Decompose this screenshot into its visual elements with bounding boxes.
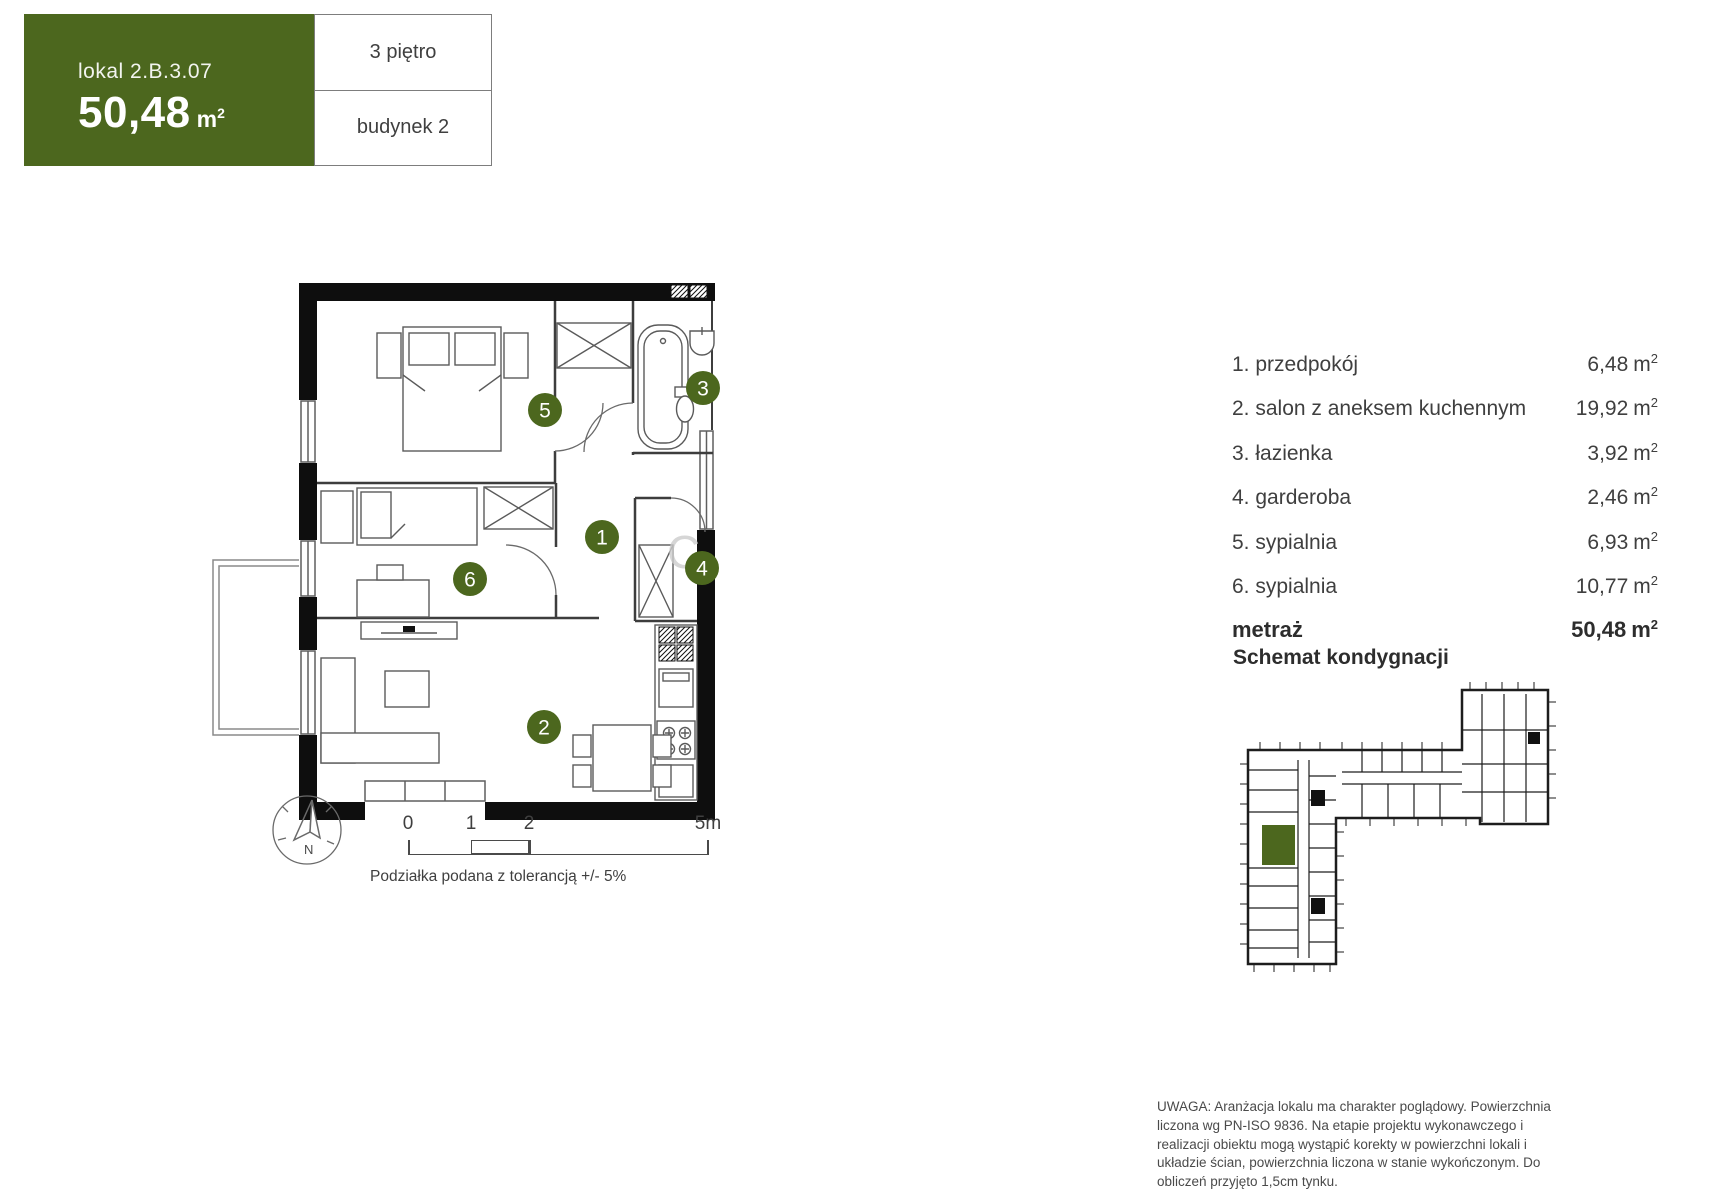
- room-circle-6: 6: [453, 562, 487, 596]
- north-arrow-icon: [294, 800, 312, 840]
- room-row: 3. łazienka3,92m2: [1232, 437, 1658, 464]
- room-area: 10,77m2: [1576, 570, 1658, 597]
- floor-plan: C 5 3 1 6 4 2: [205, 283, 721, 820]
- wardrobe-icon: [557, 323, 631, 368]
- elevator-shaft: [1311, 790, 1325, 806]
- schematic-unit-highlight: [1262, 825, 1295, 865]
- room-row: 6. sypialnia10,77m2: [1232, 570, 1658, 597]
- scale-bar-tick: [408, 840, 410, 855]
- floor-cell: 3 piętro: [315, 15, 491, 90]
- scale-caption: Podziałka podana z tolerancją +/- 5%: [370, 868, 626, 886]
- svg-text:3: 3: [697, 378, 709, 401]
- room-row: 1. przedpokój6,48m2: [1232, 348, 1658, 375]
- room-circle-5: 5: [528, 393, 562, 427]
- svg-text:2: 2: [538, 717, 550, 740]
- room-area: 3,92m2: [1587, 437, 1658, 464]
- scale-bar-box: [471, 840, 529, 854]
- total-label: metraż: [1232, 619, 1303, 640]
- room-circle-3: 3: [686, 371, 720, 405]
- nightstand-icon: [504, 333, 528, 378]
- room-circle-4: 4: [685, 551, 719, 585]
- nightstand-icon: [321, 491, 353, 543]
- chair-icon: [573, 735, 591, 757]
- svg-text:6: 6: [464, 569, 476, 592]
- unit-area: 50,48m2: [78, 88, 314, 138]
- schematic-drawing: [1130, 672, 1560, 982]
- nightstand-icon: [377, 333, 401, 378]
- living-furniture: [321, 658, 671, 791]
- scale-bar-tick: [707, 840, 709, 855]
- compass-n-label: N: [304, 842, 313, 857]
- chair-icon: [377, 565, 403, 580]
- bedroom6-furniture: [321, 487, 553, 639]
- scale-tick-2: 2: [524, 813, 535, 835]
- schematic-title: Schemat kondygnacji: [1233, 646, 1449, 670]
- unit-area-unit: m2: [197, 106, 225, 132]
- unit-area-value: 50,48: [78, 88, 191, 137]
- room-name: 6. sypialnia: [1232, 576, 1337, 597]
- tv-console-icon: [361, 622, 457, 639]
- room-name: 2. salon z aneksem kuchennym: [1232, 398, 1526, 419]
- fridge-icon: [659, 669, 693, 707]
- elevator-shaft: [1528, 732, 1540, 744]
- svg-text:4: 4: [696, 558, 708, 581]
- total-row: metraż50,48m2: [1232, 614, 1658, 640]
- scale-tick-0: 0: [403, 813, 414, 835]
- room-row: 5. sypialnia6,93m2: [1232, 526, 1658, 553]
- svg-text:1: 1: [596, 527, 608, 550]
- unit-label: lokal 2.B.3.07: [78, 60, 314, 84]
- compass: N: [268, 788, 348, 872]
- elevator-shaft: [1311, 898, 1325, 914]
- room-row: 4. garderoba2,46m2: [1232, 481, 1658, 508]
- room-row: 2. salon z aneksem kuchennym19,92m2: [1232, 392, 1658, 419]
- dining-table-icon: [573, 725, 671, 791]
- room-area: 6,93m2: [1587, 526, 1658, 553]
- scale-bar-tick: [529, 840, 531, 855]
- chair-icon: [653, 735, 671, 757]
- coffee-table-icon: [385, 671, 429, 707]
- chair-icon: [653, 765, 671, 787]
- room-circle-1: 1: [585, 520, 619, 554]
- balcony: [213, 560, 299, 735]
- room-area: 6,48m2: [1587, 348, 1658, 375]
- scale-tick-1: 1: [466, 813, 477, 835]
- scale-tick-5m: 5m: [695, 813, 721, 835]
- vent-shaft-icon: [659, 627, 693, 661]
- scale-bar: [408, 854, 708, 855]
- disclaimer-text: UWAGA: Aranżacja lokalu ma charakter pog…: [1157, 1098, 1569, 1192]
- room-name: 1. przedpokój: [1232, 354, 1358, 375]
- room-circle-2: 2: [527, 710, 561, 744]
- svg-text:5: 5: [539, 400, 551, 423]
- room-area: 19,92m2: [1576, 392, 1658, 419]
- header-info-box: 3 piętro budynek 2: [314, 14, 492, 166]
- page: { "header": { "unit_label": "lokal 2.B.3…: [0, 0, 1720, 1200]
- desk-icon: [357, 580, 429, 617]
- header-card: lokal 2.B.3.07 50,48m2: [24, 14, 314, 166]
- room-name: 4. garderoba: [1232, 487, 1351, 508]
- room-list: 1. przedpokój6,48m2 2. salon z aneksem k…: [1232, 348, 1658, 658]
- chair-icon: [573, 765, 591, 787]
- total-area: 50,48m2: [1571, 614, 1658, 640]
- building-cell: budynek 2: [315, 90, 491, 166]
- room-area: 2,46m2: [1587, 481, 1658, 508]
- room-name: 3. łazienka: [1232, 443, 1332, 464]
- sink-icon: [690, 327, 714, 355]
- wardrobe-icon: [484, 487, 553, 529]
- room-name: 5. sypialnia: [1232, 532, 1337, 553]
